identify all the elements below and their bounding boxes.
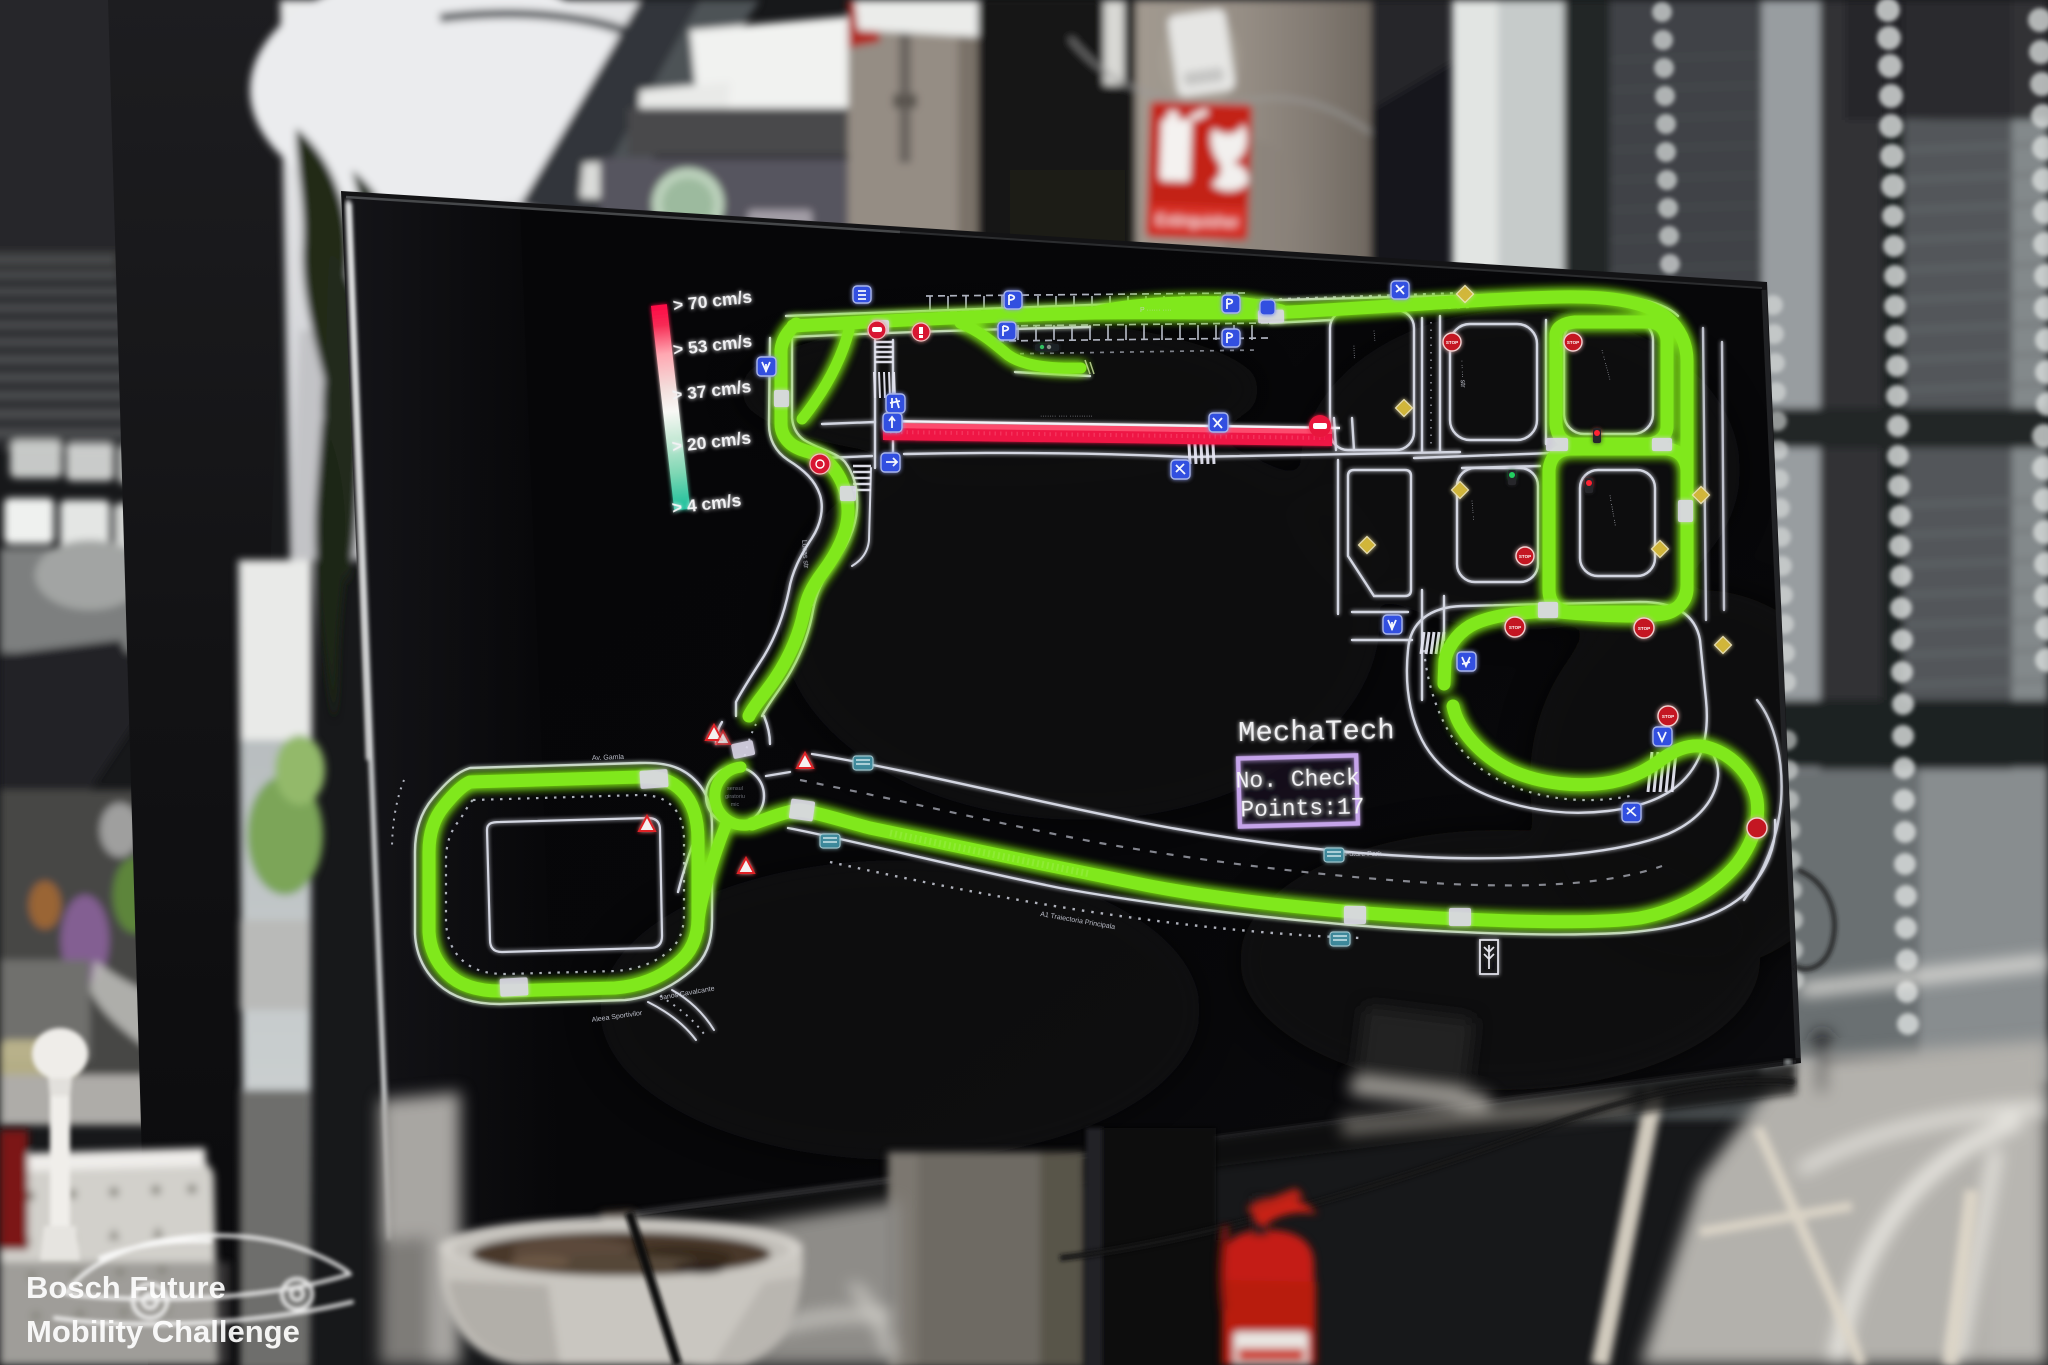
- svg-text:STOP: STOP: [1638, 626, 1650, 631]
- svg-text:Points:17: Points:17: [1240, 794, 1365, 823]
- svg-text:······: ······: [1350, 345, 1357, 359]
- svg-text:STOP: STOP: [1446, 340, 1458, 345]
- svg-text:giratoriu: giratoriu: [725, 794, 745, 800]
- svg-text:STOP: STOP: [1567, 340, 1579, 345]
- svg-text:STOP: STOP: [1662, 714, 1674, 719]
- svg-text:sensul: sensul: [727, 786, 743, 792]
- svg-text:Mobility Challenge: Mobility Challenge: [26, 1314, 300, 1349]
- svg-text:P ······ ····: P ······ ····: [1140, 307, 1172, 314]
- svg-text:Future Park: Future Park: [1345, 851, 1382, 858]
- svg-text:STOP: STOP: [1519, 554, 1531, 559]
- svg-text:MechaTech: MechaTech: [1238, 714, 1395, 750]
- svg-text:·····: ·····: [1370, 330, 1378, 342]
- svg-text:Av. Gamla: Av. Gamla: [592, 754, 624, 762]
- svg-text:······· ···· ··········: ······· ···· ··········: [1040, 413, 1093, 420]
- svg-text:· ·· ··· str: · ·· ··· str: [1458, 360, 1466, 388]
- svg-text:No. Check: No. Check: [1235, 765, 1360, 794]
- svg-text:Extinguisher: Extinguisher: [1156, 211, 1239, 231]
- svg-text:mic: mic: [731, 802, 740, 808]
- svg-text:STOP: STOP: [1509, 625, 1521, 630]
- svg-text:Bosch Future: Bosch Future: [26, 1270, 226, 1305]
